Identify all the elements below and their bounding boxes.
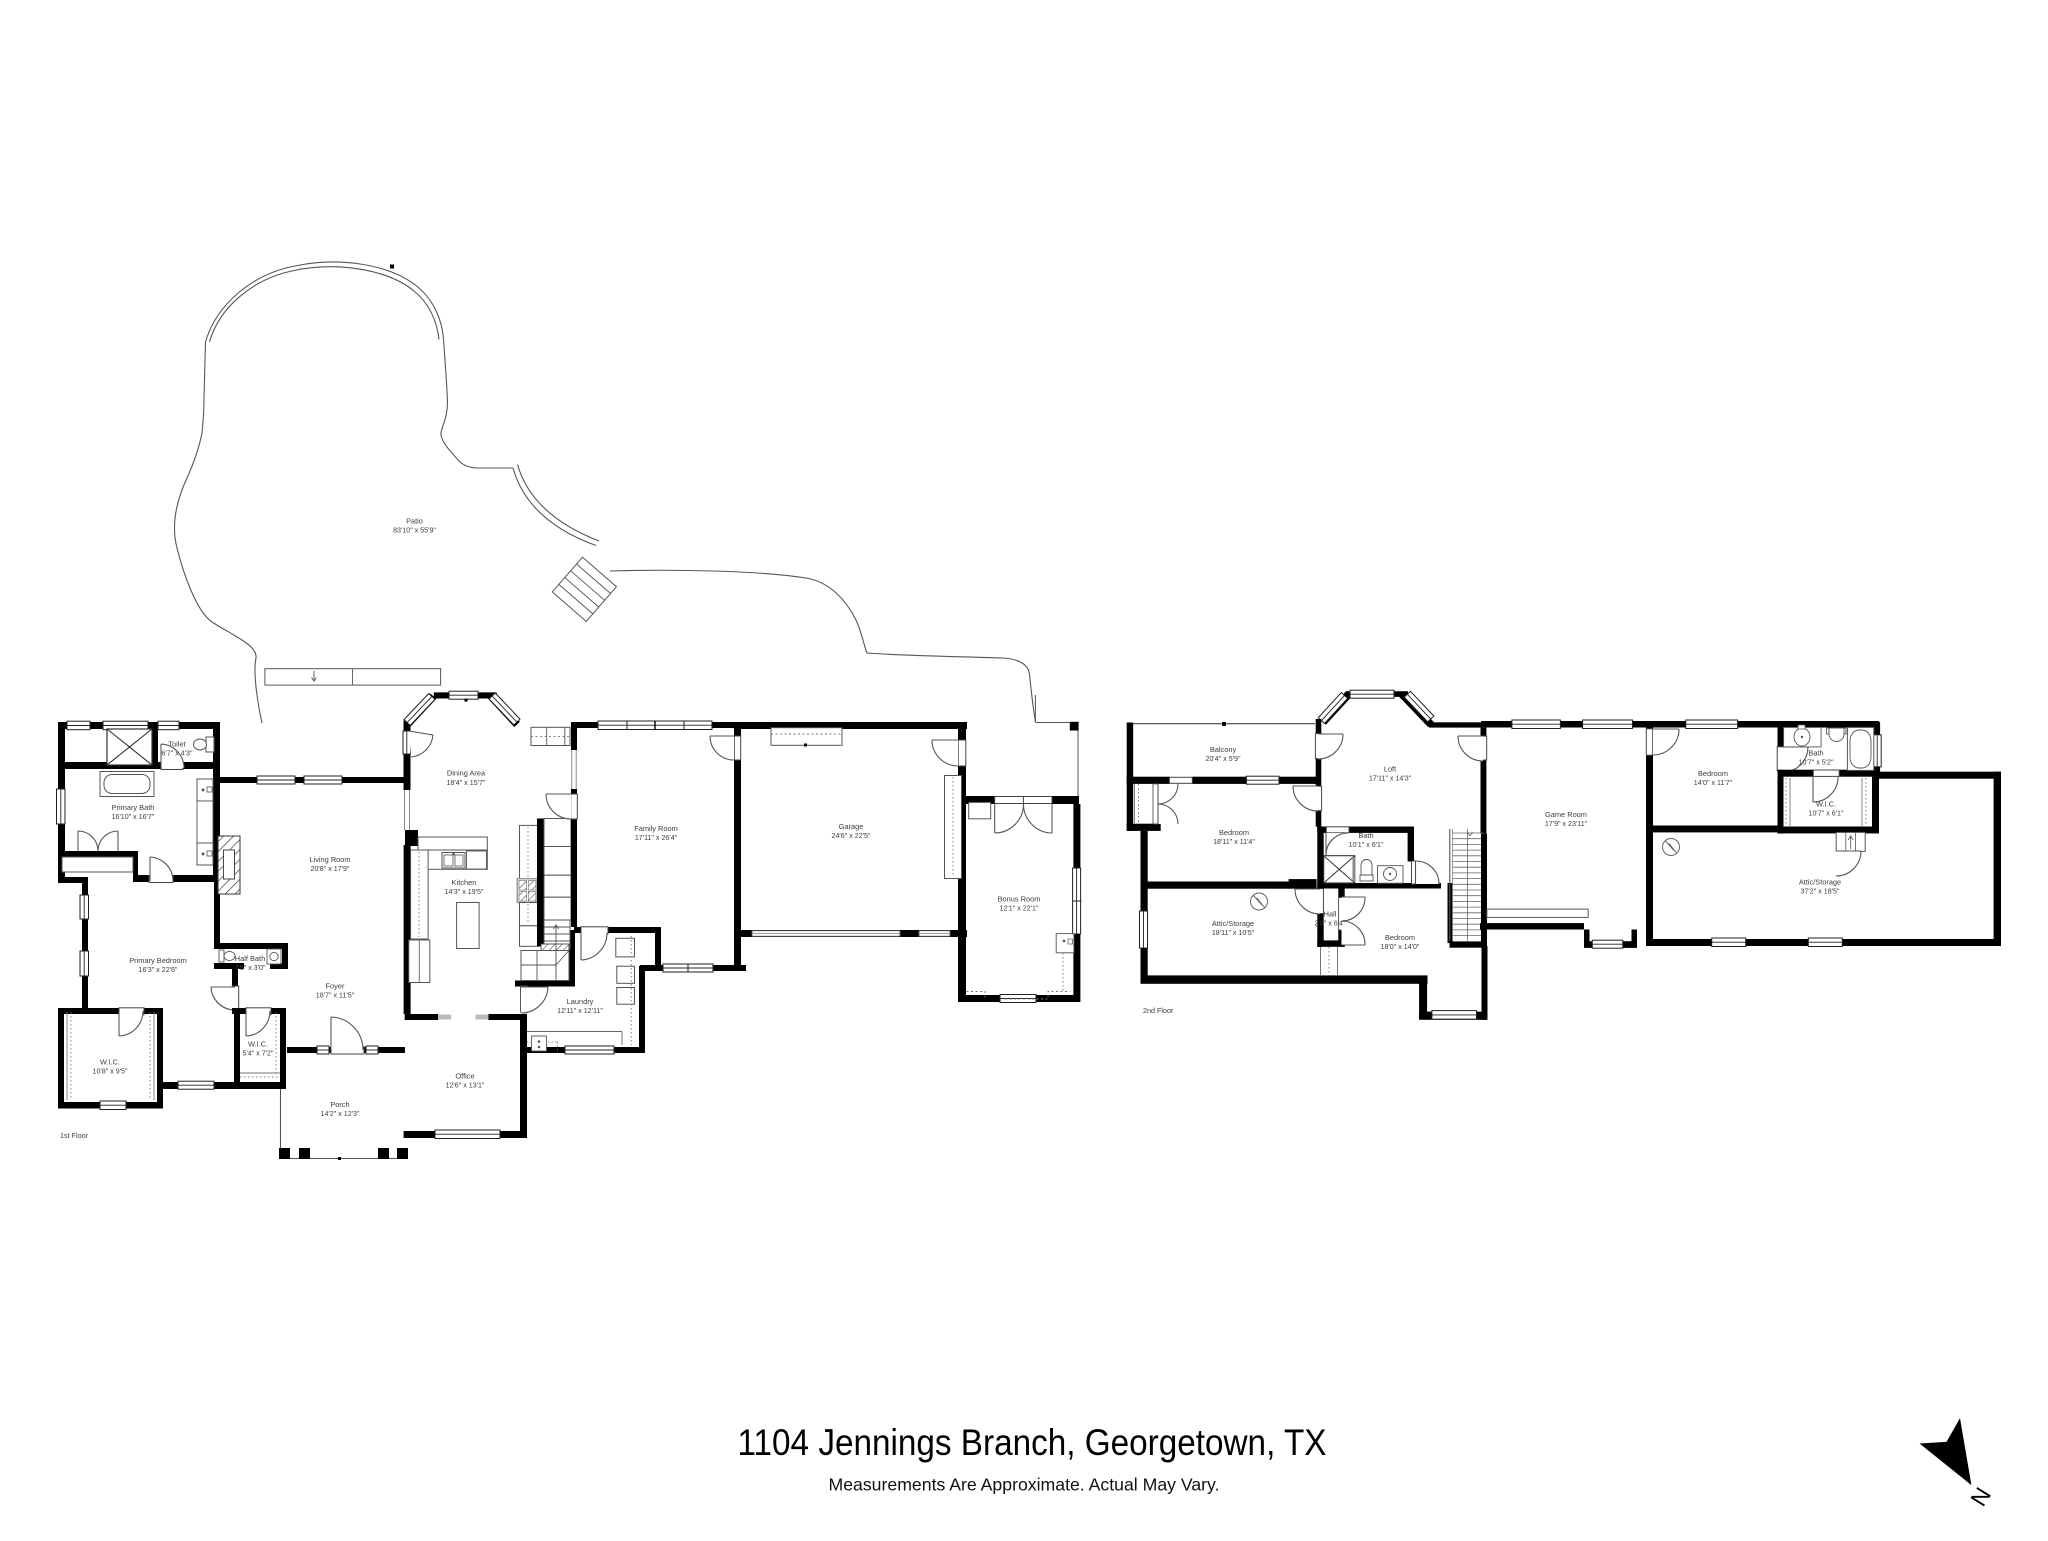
svg-text:12'6" x 13'1": 12'6" x 13'1" — [446, 1082, 485, 1090]
svg-text:18'11" x 11'4": 18'11" x 11'4" — [1213, 838, 1255, 846]
svg-text:18'4" x 15'7": 18'4" x 15'7" — [447, 779, 486, 787]
svg-text:14'0" x 11'7": 14'0" x 11'7" — [1694, 779, 1733, 787]
svg-text:W.I.C.: W.I.C. — [1816, 800, 1836, 809]
svg-text:Patio: Patio — [406, 517, 423, 526]
svg-text:17'11" x 26'4": 17'11" x 26'4" — [635, 834, 678, 842]
svg-text:24'6" x 22'5": 24'6" x 22'5" — [832, 832, 871, 840]
svg-text:Half Bath: Half Bath — [235, 954, 265, 963]
svg-text:20'4" x 5'9": 20'4" x 5'9" — [1206, 755, 1241, 763]
svg-text:16'3" x 22'6": 16'3" x 22'6" — [139, 966, 178, 974]
svg-text:Family Room: Family Room — [634, 824, 678, 833]
svg-text:2'0" x 6'4": 2'0" x 6'4" — [1314, 920, 1345, 928]
svg-text:Measurements Are Approximate.: Measurements Are Approximate. Actual May… — [829, 1475, 1220, 1495]
svg-text:17'11" x 14'3": 17'11" x 14'3" — [1369, 775, 1412, 783]
svg-text:W.I.C.: W.I.C. — [100, 1058, 120, 1067]
svg-text:Bath: Bath — [1358, 831, 1373, 840]
svg-text:Dining Area: Dining Area — [447, 769, 486, 778]
svg-text:5'4" x 7'2": 5'4" x 7'2" — [242, 1050, 273, 1058]
svg-text:Living Room: Living Room — [309, 855, 350, 864]
svg-text:Bath: Bath — [1808, 749, 1823, 758]
svg-text:Bedroom: Bedroom — [1385, 933, 1415, 942]
svg-text:Office: Office — [455, 1072, 474, 1081]
svg-text:Bonus Room: Bonus Room — [998, 895, 1041, 904]
svg-text:10'7" x 6'1": 10'7" x 6'1" — [1809, 810, 1844, 818]
svg-text:Bedroom: Bedroom — [1219, 828, 1249, 837]
svg-text:Primary Bedroom: Primary Bedroom — [129, 956, 187, 965]
svg-text:1st Floor: 1st Floor — [60, 1131, 89, 1140]
svg-text:16'10" x 16'7": 16'10" x 16'7" — [112, 813, 155, 821]
svg-text:Kitchen: Kitchen — [452, 878, 477, 887]
svg-text:14'2" x 12'3": 14'2" x 12'3" — [321, 1110, 360, 1118]
svg-text:Bedroom: Bedroom — [1698, 769, 1728, 778]
svg-text:Foyer: Foyer — [326, 982, 345, 991]
svg-text:83'10" x 55'9": 83'10" x 55'9" — [393, 527, 436, 535]
svg-text:7'5" x 3'0": 7'5" x 3'0" — [234, 964, 265, 972]
svg-text:10'7" x 5'2": 10'7" x 5'2" — [1799, 759, 1834, 767]
svg-text:18'11" x 10'5": 18'11" x 10'5" — [1212, 929, 1255, 937]
svg-text:Hall: Hall — [1324, 910, 1337, 919]
svg-text:2nd Floor: 2nd Floor — [1143, 1006, 1174, 1015]
svg-text:Toilet: Toilet — [168, 740, 185, 749]
svg-text:37'2" x 18'5": 37'2" x 18'5" — [1801, 888, 1840, 896]
svg-text:10'1" x 6'1": 10'1" x 6'1" — [1349, 841, 1384, 849]
svg-text:6'7" x 4'3": 6'7" x 4'3" — [161, 750, 192, 758]
svg-text:17'9" x 23'11": 17'9" x 23'11" — [1545, 820, 1588, 828]
svg-text:10'8" x 9'5": 10'8" x 9'5" — [93, 1068, 128, 1076]
svg-text:Loft: Loft — [1384, 765, 1396, 774]
svg-text:18'0" x 14'0": 18'0" x 14'0" — [1381, 943, 1420, 951]
svg-text:14'3" x 19'5": 14'3" x 19'5" — [445, 888, 484, 896]
svg-text:12'1" x 22'1": 12'1" x 22'1" — [1000, 905, 1039, 913]
svg-text:Garage: Garage — [839, 822, 864, 831]
svg-text:Attic/Storage: Attic/Storage — [1799, 878, 1841, 887]
svg-text:Primary Bath: Primary Bath — [112, 803, 155, 812]
svg-text:Game Room: Game Room — [1545, 810, 1587, 819]
svg-text:20'8" x 17'9": 20'8" x 17'9" — [311, 865, 350, 873]
svg-text:W.I.C.: W.I.C. — [248, 1040, 268, 1049]
svg-text:1104 Jennings Branch, Georgeto: 1104 Jennings Branch, Georgetown, TX — [738, 1422, 1327, 1463]
svg-text:Balcony: Balcony — [1210, 745, 1237, 754]
svg-text:Porch: Porch — [330, 1100, 349, 1109]
svg-text:12'11" x 12'11": 12'11" x 12'11" — [557, 1007, 603, 1015]
svg-text:Attic/Storage: Attic/Storage — [1212, 919, 1254, 928]
svg-text:18'7" x 11'5": 18'7" x 11'5" — [316, 992, 355, 1000]
svg-text:Laundry: Laundry — [567, 997, 594, 1006]
